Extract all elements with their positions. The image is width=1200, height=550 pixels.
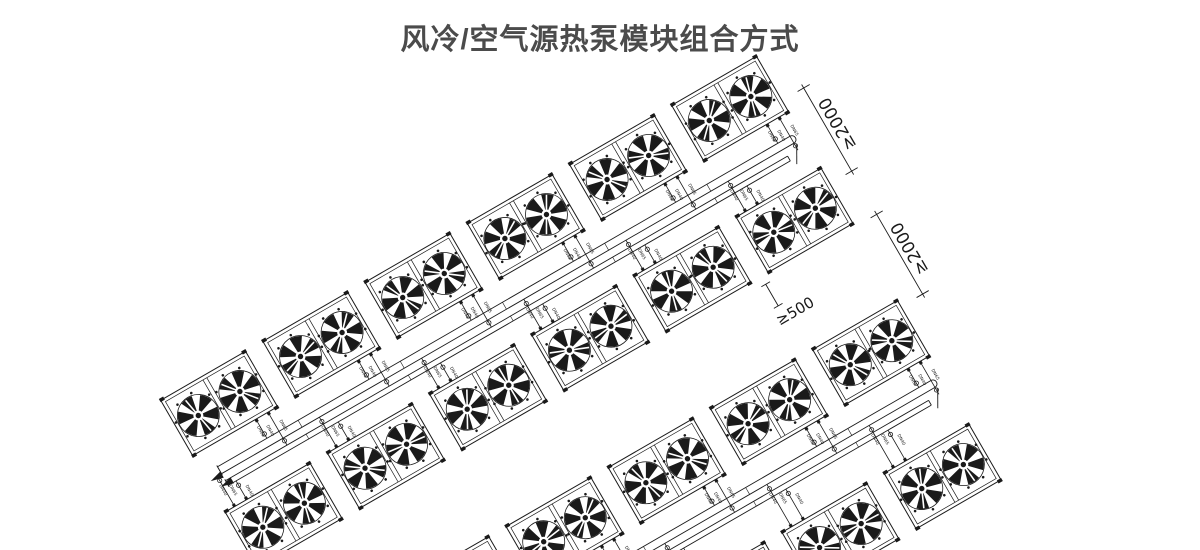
heat-pump-unit — [729, 164, 858, 278]
svg-text:≥2000: ≥2000 — [815, 94, 861, 154]
branch-pipe: DN65DN40DN65 — [354, 348, 398, 395]
dimension-row-clearance-top: ≥2000 — [796, 73, 873, 178]
svg-text:DN40: DN40 — [793, 492, 804, 506]
branch-pipe: DN40DN65DN40 — [865, 414, 914, 471]
svg-text:≥500: ≥500 — [773, 293, 818, 329]
heat-pump-unit — [325, 399, 451, 511]
heat-pump-unit — [670, 52, 795, 163]
branch-pipe: DN65DN40DN65 — [252, 407, 296, 454]
svg-text:DN40: DN40 — [896, 433, 907, 447]
heat-pump-unit — [257, 290, 382, 401]
svg-text:DN65: DN65 — [482, 301, 493, 315]
svg-text:DN65: DN65 — [930, 368, 941, 382]
fan-icon — [723, 399, 773, 449]
heat-pump-unit — [809, 298, 932, 408]
svg-text:DN40: DN40 — [217, 483, 228, 497]
branch-pipe: DN65DN40DN65 — [597, 534, 641, 550]
page-title: 风冷/空气源热泵模块组合方式 — [0, 16, 1200, 58]
svg-text:DN65: DN65 — [584, 242, 595, 256]
branch-pipe: DN40DN65DN40 — [763, 473, 812, 530]
svg-text:DN65: DN65 — [686, 183, 697, 197]
heat-pump-unit — [499, 475, 625, 550]
branch-pipe: DN65DN40DN65 — [660, 171, 704, 218]
heat-pump-unit — [527, 281, 656, 395]
heat-pump-unit — [360, 231, 483, 341]
svg-text:DN65: DN65 — [789, 124, 800, 138]
svg-text:≥2000: ≥2000 — [887, 218, 933, 278]
fan-icon — [790, 183, 840, 233]
heat-pump-unit — [678, 537, 803, 550]
heat-pump-unit — [568, 111, 692, 222]
heat-pump-unit — [154, 349, 279, 461]
branch-pipe: DN65DN40DN65 — [801, 416, 845, 463]
heat-pump-unit — [628, 222, 757, 336]
heat-pump-unit — [464, 171, 587, 281]
heat-pump-unit — [779, 478, 906, 550]
heat-pump-module-diagram: DN65DN40DN65DN65DN40DN65DN65DN40DN65DN65… — [0, 0, 1200, 550]
heat-pump-unit — [705, 357, 829, 468]
canvas: DN65DN40DN65DN65DN40DN65DN65DN40DN65DN65… — [0, 0, 1200, 550]
svg-text:DN65: DN65 — [725, 486, 736, 500]
dimension-pipe-clearance: ≥500 — [758, 268, 817, 329]
branch-pipe: DN65DN40DN65 — [699, 475, 743, 522]
svg-text:DN65: DN65 — [623, 545, 634, 550]
branch-pipe: DN65DN40DN65 — [558, 230, 602, 277]
fan-icon — [519, 517, 569, 550]
header-pipe — [206, 133, 808, 497]
branch-pipe: DN65DN40DN65 — [763, 112, 807, 159]
heat-pump-unit — [397, 533, 524, 550]
svg-text:DN65: DN65 — [827, 427, 838, 441]
dimension-row-clearance-middle: ≥2000 — [869, 200, 944, 301]
fan-icon — [277, 333, 324, 380]
fan-icon — [174, 391, 223, 440]
heat-pump-unit — [602, 416, 727, 527]
fan-icon — [585, 301, 636, 352]
heat-pump-unit — [426, 340, 553, 453]
svg-text:DN65: DN65 — [380, 360, 391, 374]
heat-pump-unit — [223, 458, 348, 550]
fan-icon — [477, 211, 533, 267]
branch-pipe: DN65DN40DN65 — [904, 357, 948, 404]
svg-text:DN65: DN65 — [278, 419, 289, 433]
branch-pipe: DN65DN40DN65 — [456, 289, 500, 336]
